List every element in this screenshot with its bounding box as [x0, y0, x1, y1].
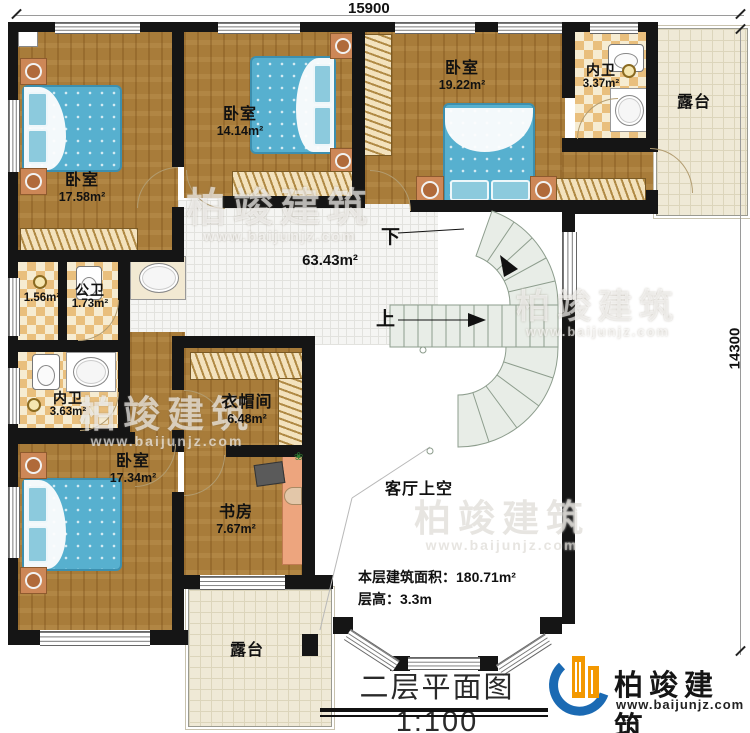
wall — [172, 492, 184, 630]
wall — [150, 630, 188, 645]
dimension-top-label: 15900 — [348, 0, 390, 17]
nightstand — [20, 168, 47, 195]
logo-url: www.baijunjz.com — [616, 697, 744, 712]
room-label-store: 1.56m² — [24, 292, 60, 305]
bed-bedroom-tm — [250, 56, 336, 154]
wall — [172, 336, 184, 390]
dimension-tick — [735, 9, 746, 20]
floor-plan-canvas: ❀ 下 上 — [0, 0, 750, 733]
sink-bath-left — [66, 352, 116, 392]
wall — [562, 22, 575, 98]
title-text: 二层平面图 — [359, 672, 514, 704]
room-label-bedroom-tm: 卧室 14.14m² — [217, 106, 264, 139]
light-fixture — [33, 275, 47, 289]
room-label-bedroom-bl: 卧室 17.34m² — [110, 453, 157, 486]
wardrobe — [364, 34, 392, 156]
wall — [8, 250, 184, 262]
corner-cabinet — [18, 30, 38, 47]
room-label-cloakroom: 衣帽间 6.48m² — [221, 394, 272, 427]
window — [200, 576, 285, 590]
title-underline-thin — [320, 715, 548, 717]
title-underline-thick — [320, 708, 548, 712]
stairs-down-label: 下 — [381, 222, 400, 249]
nightstand — [20, 567, 47, 594]
study-chair — [284, 487, 302, 505]
dimension-tick — [11, 9, 22, 20]
company-logo: 柏竣建筑 www.baijunjz.com — [548, 650, 748, 730]
window — [218, 22, 300, 34]
light-fixture — [622, 64, 636, 78]
wardrobe — [232, 171, 354, 198]
floor-info: 本层建筑面积：180.71m² 层高：3.3m — [358, 566, 516, 611]
bed-bedroom-tr — [443, 103, 535, 206]
wall — [8, 630, 40, 645]
window — [40, 631, 150, 646]
wall — [562, 200, 658, 214]
logo-icon — [548, 650, 610, 722]
room-label-bedroom-tr: 卧室 19.22m² — [439, 60, 486, 93]
wall — [172, 22, 184, 167]
window — [395, 22, 475, 34]
room-label-bedroom-tl: 卧室 17.58m² — [59, 172, 106, 205]
dimension-right-label: 14300 — [726, 328, 743, 370]
wall — [646, 22, 658, 145]
room-label-void: 客厅上空 — [385, 481, 453, 499]
toilet-bath-left — [32, 354, 60, 390]
wall — [562, 138, 658, 152]
window — [498, 22, 562, 34]
wardrobe — [190, 352, 304, 380]
window — [8, 100, 20, 172]
room-label-hall-area: 63.43m² — [302, 252, 358, 269]
room-label-bath-left: 内卫 3.63m² — [50, 390, 86, 419]
floor-height-text: 层高：3.3m — [358, 588, 516, 610]
wall — [222, 196, 365, 208]
room-label-bath-public: 公卫 1.73m² — [72, 282, 108, 311]
floor-area-text: 本层建筑面积：180.71m² — [358, 566, 516, 588]
nightstand — [20, 452, 47, 479]
nightstand — [20, 58, 47, 85]
plant-icon: ❀ — [294, 450, 303, 463]
light-fixture — [27, 398, 41, 412]
window — [8, 487, 20, 558]
room-label-terrace-tr: 露台 — [677, 94, 711, 112]
window — [55, 22, 140, 34]
bed-bedroom-tl — [22, 85, 122, 172]
wall — [8, 340, 130, 352]
room-label-terrace-b: 露台 — [230, 642, 264, 660]
room-label-study: 书房 7.67m² — [216, 504, 256, 537]
void-boundary-lines — [310, 440, 570, 680]
wardrobe — [278, 378, 304, 448]
window — [8, 368, 20, 424]
window — [590, 22, 638, 34]
study-desk-monitor — [254, 461, 286, 487]
window — [8, 278, 20, 336]
wall — [172, 575, 200, 589]
wall — [8, 432, 135, 444]
wall — [184, 336, 315, 348]
stairs-up-label: 上 — [376, 304, 395, 331]
bed-bedroom-bl — [22, 478, 122, 571]
hall-sink-counter — [130, 256, 186, 300]
room-label-bath-tr: 内卫 3.37m² — [583, 62, 619, 91]
drawing-title: 二层平面图 1:100 — [322, 664, 552, 733]
wall — [352, 22, 365, 208]
